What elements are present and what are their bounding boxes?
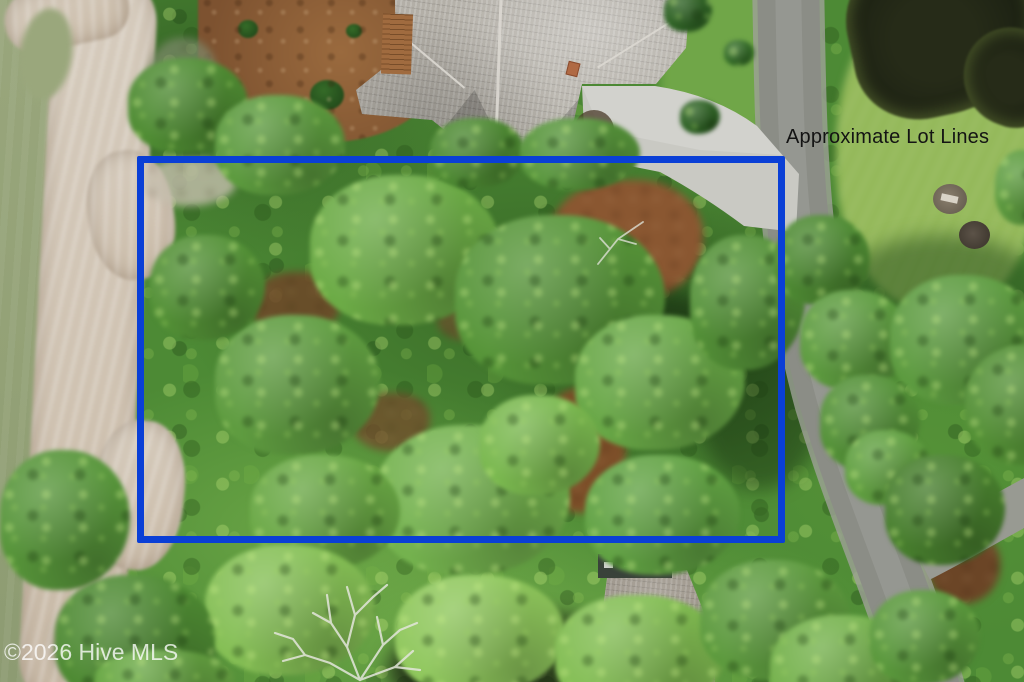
- wood-deck: [381, 13, 413, 74]
- tree-cluster: [870, 590, 980, 682]
- dead-tree: [235, 575, 465, 682]
- lot-lines-label: Approximate Lot Lines: [786, 126, 989, 149]
- chimney: [565, 61, 580, 77]
- aerial-photo: Approximate Lot Lines ©2026 Hive MLS: [0, 0, 1024, 682]
- bench: [940, 193, 958, 203]
- mls-watermark: ©2026 Hive MLS: [4, 639, 178, 666]
- fire-pit: [933, 184, 967, 214]
- fire-pit: [959, 221, 990, 249]
- roof-ridge: [495, 0, 503, 140]
- lot-outline: [137, 156, 785, 543]
